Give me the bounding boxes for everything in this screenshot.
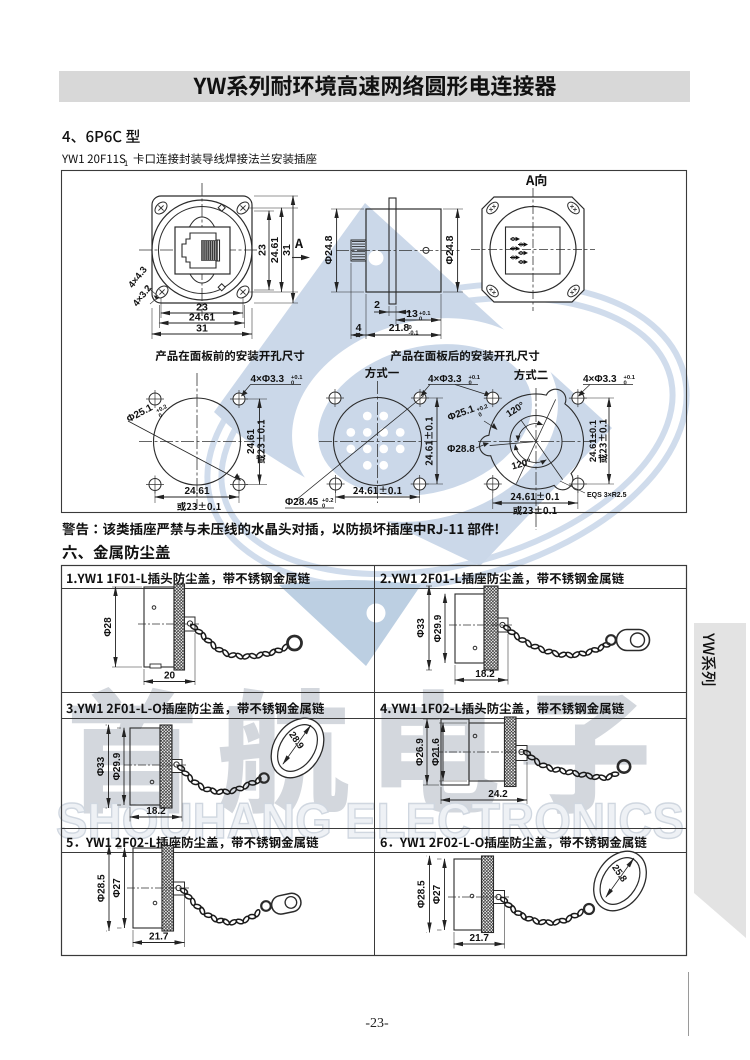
svg-text:Φ28: Φ28 (103, 617, 114, 637)
svg-text:0: 0 (624, 380, 627, 386)
svg-text:0: 0 (419, 316, 422, 322)
svg-text:Φ28.8: Φ28.8 (447, 444, 475, 455)
svg-text:-0.1: -0.1 (409, 330, 420, 336)
svg-text:31: 31 (196, 323, 208, 335)
svg-text:4×Φ3.3: 4×Φ3.3 (583, 374, 617, 385)
svg-text:Φ26.9: Φ26.9 (415, 738, 426, 766)
svg-text:24.61±0.1: 24.61±0.1 (588, 419, 599, 462)
svg-text:24.61: 24.61 (184, 486, 209, 497)
svg-text:Φ21.6: Φ21.6 (431, 738, 442, 766)
svg-text:EQS 3×R2.5: EQS 3×R2.5 (587, 492, 627, 499)
svg-text:Φ33: Φ33 (416, 618, 427, 638)
svg-text:18.2: 18.2 (146, 806, 166, 817)
svg-text:+0.2: +0.2 (155, 404, 168, 415)
svg-text:21.7: 21.7 (149, 932, 169, 943)
svg-text:0: 0 (469, 380, 472, 386)
svg-text:13: 13 (406, 308, 418, 320)
svg-text:24.61: 24.61 (246, 429, 257, 454)
svg-text:20: 20 (164, 671, 176, 682)
svg-text:4: 4 (356, 322, 362, 334)
svg-text:Φ24.8: Φ24.8 (323, 235, 335, 264)
svg-text:Φ28.45: Φ28.45 (285, 497, 319, 508)
svg-text:4×Φ3.3: 4×Φ3.3 (428, 374, 462, 385)
svg-text:Φ27: Φ27 (432, 884, 443, 904)
svg-text:31: 31 (281, 244, 293, 256)
svg-text:24.2: 24.2 (488, 789, 508, 800)
svg-text:21.7: 21.7 (470, 933, 490, 944)
svg-text:24.61: 24.61 (269, 237, 281, 263)
svg-text:Φ25.1: Φ25.1 (125, 402, 155, 425)
svg-text:0: 0 (291, 380, 294, 386)
svg-text:2: 2 (374, 299, 380, 311)
svg-text:Φ24.8: Φ24.8 (444, 235, 456, 264)
svg-text:0: 0 (322, 503, 325, 509)
svg-text:Φ33: Φ33 (96, 756, 107, 776)
svg-text:-23-: -23- (365, 1016, 389, 1031)
svg-text:18.2: 18.2 (475, 669, 495, 680)
svg-text:Φ29.9: Φ29.9 (433, 614, 444, 642)
svg-text:21.8: 21.8 (389, 322, 410, 334)
svg-text:Φ29.9: Φ29.9 (112, 752, 123, 780)
svg-text:Φ28.5: Φ28.5 (417, 880, 428, 908)
svg-text:23: 23 (257, 244, 269, 256)
svg-text:4×Φ3.3: 4×Φ3.3 (251, 374, 285, 385)
svg-text:Φ28.5: Φ28.5 (97, 874, 108, 902)
svg-text:Φ27: Φ27 (112, 878, 123, 898)
